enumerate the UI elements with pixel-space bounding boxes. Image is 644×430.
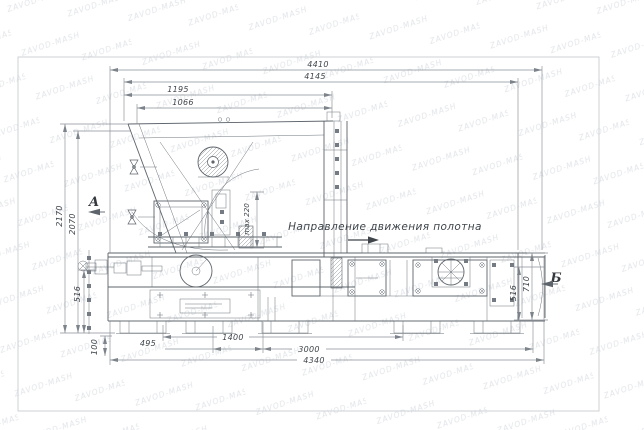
dim-1195-label: 1195: [167, 85, 189, 94]
fan-unit: [432, 257, 470, 287]
dim-1400-label: 1400: [222, 333, 244, 342]
dim-516-right-label: 516: [509, 285, 518, 301]
dim-max-220-label: max 220: [242, 203, 251, 235]
dim-4340-label: 4340: [303, 356, 325, 365]
dim-2170-label: 2170: [55, 205, 64, 227]
dim-2070-label: 2070: [68, 213, 77, 235]
dim-1066-label: 1066: [172, 98, 194, 107]
dim-710-label: 710: [522, 276, 531, 292]
drawing-sheet: ZAVOD-MASH ZAVOD-MASH: [0, 0, 644, 430]
dim-3000-label: 3000: [298, 345, 320, 354]
dim-4410-label: 4410: [307, 60, 329, 69]
dim-100-label: 100: [90, 339, 99, 355]
engineering-drawing: ZAVOD-MASH ZAVOD-MASH: [0, 0, 644, 430]
dim-4145-label: 4145: [304, 72, 326, 81]
dim-495-label: 495: [140, 339, 156, 348]
direction-note-text: Направление движения полотна: [288, 221, 482, 233]
view-a-text: А: [88, 195, 100, 210]
hatched-roller: [331, 258, 342, 288]
dim-516-left-label: 516: [73, 286, 82, 302]
